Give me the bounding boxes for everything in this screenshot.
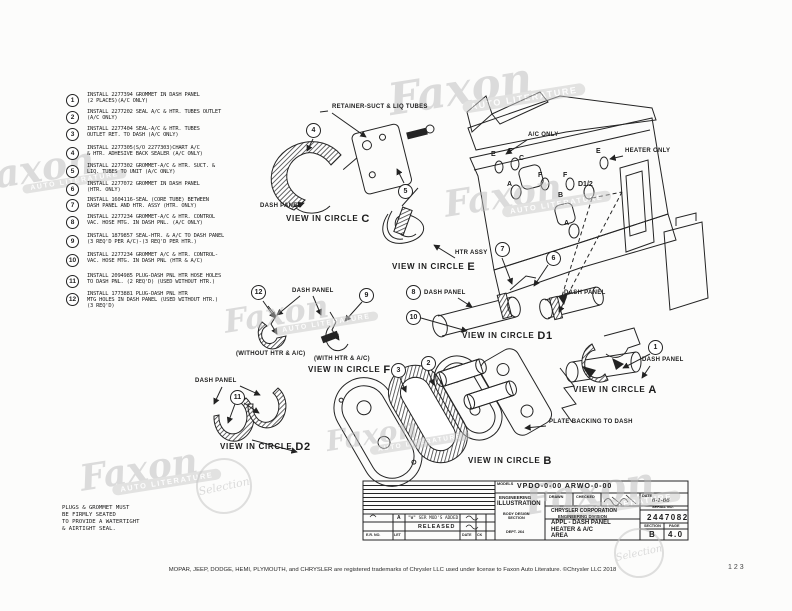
view-letter: D2 [295, 441, 310, 453]
parts-item-number: 8 [66, 216, 79, 229]
dash-panel-label: DASH PANEL [642, 357, 684, 363]
parts-item-number: 7 [66, 199, 79, 212]
view-prefix: VIEW IN CIRCLE [220, 442, 292, 451]
dash-panel-label: DASH PANEL [260, 203, 302, 209]
division-name: ENGINEERING DIVISION [558, 514, 607, 519]
overview-letter: F [538, 172, 542, 179]
callout-2: 2 [421, 356, 436, 371]
view-d2-title: VIEW IN CIRCLE D2 [220, 441, 311, 453]
view-letter: B [543, 455, 552, 467]
let-label: LET [394, 533, 401, 537]
callout-10: 10 [406, 310, 421, 325]
callout-6: 6 [546, 251, 561, 266]
overview-letter: A [507, 181, 512, 188]
overview-letter: F [508, 148, 512, 155]
ac-only-label: A/C ONLY [528, 132, 559, 138]
parts-item-number: 1 [66, 94, 79, 107]
view-prefix: VIEW IN CIRCLE [308, 365, 380, 374]
view-c-title: VIEW IN CIRCLE C [286, 213, 370, 225]
section-label: SECTION [644, 524, 661, 528]
view-prefix: VIEW IN CIRCLE [392, 262, 464, 271]
er-no-label: E.R. NO. [366, 533, 380, 537]
view-letter: F [383, 364, 390, 376]
serial-number: 2447082 [647, 513, 689, 522]
parts-item-text: INSTALL 2277202 SEAL A/C & HTR. TUBES OU… [87, 109, 279, 121]
models-label: MODELS [497, 482, 513, 486]
callout-5: 5 [398, 184, 413, 199]
parts-item-number: 4 [66, 147, 79, 160]
illustration-label: ILLUSTRATION [497, 501, 541, 507]
overview-letter: F [563, 172, 567, 179]
revision-description: "W" SER MOD'S ADDED [408, 516, 458, 521]
dash-panel-label: DASH PANEL [195, 378, 237, 384]
plate-backing-label: PLATE BACKING TO DASH [549, 419, 633, 425]
drawn-label: DRAWN [549, 495, 563, 499]
retainer-label: RETAINER-SUCT & LIQ TUBES [332, 104, 428, 110]
seating-note: PLUGS & GROMMET MUST BE FIRMLY SEATED TO… [62, 505, 139, 533]
overview-letter: A [564, 220, 569, 227]
callout-11: 11 [230, 390, 245, 405]
overview-letter: E [596, 148, 601, 155]
callout-7: 7 [495, 242, 510, 257]
callout-4: 4 [306, 123, 321, 138]
ck-label: CK [477, 533, 482, 537]
dash-panel-label: DASH PANEL [424, 290, 466, 296]
parts-item-text: INSTALL 2277404 SEAL-A/C & HTR. TUBES OU… [87, 126, 279, 138]
view-a-title: VIEW IN CIRCLE A [573, 384, 657, 396]
view-f-title: VIEW IN CIRCLE F [308, 364, 391, 376]
scanned-parts-diagram-page: Faxon AUTO LITERATURE Faxon AUTO LITERAT… [0, 0, 792, 611]
parts-item-text: INSTALL 2277234 GROMMET-A/C & HTR. CONTR… [87, 214, 279, 226]
parts-item-number: 11 [66, 275, 79, 288]
without-htr-label: (WITHOUT HTR & A/C) [236, 351, 305, 357]
parts-item-number: 3 [66, 128, 79, 141]
section-value: B [649, 530, 656, 539]
rev-date-label: DATE [462, 533, 472, 537]
parts-item-text: INSTALL 2277305(S/O 2277303)CHART A/C & … [87, 145, 279, 157]
trademark-footer: MOPAR, JEEP, DODGE, HEMI, PLYMOUTH, and … [120, 567, 665, 573]
callout-9: 9 [359, 288, 374, 303]
parts-item-number: 5 [66, 165, 79, 178]
heater-only-label: HEATER ONLY [625, 148, 670, 154]
dash-panel-label: DASH PANEL [292, 288, 334, 294]
view-d1-title: VIEW IN CIRCLE D1 [462, 330, 553, 342]
parts-item-text: INSTALL 1879857 SEAL-HTR. & A/C TO DASH … [87, 233, 279, 245]
callout-8: 8 [406, 285, 421, 300]
view-letter: C [361, 213, 370, 225]
htr-assy-label: HTR ASSY [455, 250, 488, 256]
released-label: RELEASED [418, 524, 455, 530]
dash-panel-label: DASH PANEL [564, 290, 606, 296]
eng-label: ENGINEERING [499, 495, 531, 500]
parts-item-number: 2 [66, 111, 79, 124]
parts-item-text: INSTALL 2277072 GROMMET IN DASH PANEL (H… [87, 181, 279, 193]
with-htr-label: (WITH HTR & A/C) [314, 356, 370, 362]
page-label: PAGE [669, 524, 679, 528]
page-value: 4.0 [668, 530, 684, 539]
checked-label: CHECKED [576, 495, 595, 499]
models-value: VPDO-0-00 ARWO-0-00 [517, 483, 612, 490]
callout-12: 12 [251, 285, 266, 300]
parts-item-number: 9 [66, 235, 79, 248]
page-number: 123 [728, 564, 746, 571]
view-prefix: VIEW IN CIRCLE [286, 214, 358, 223]
overview-letter: C [519, 155, 524, 162]
view-letter: D1 [537, 330, 552, 342]
date-value: 6-1-66 [652, 498, 670, 504]
view-prefix: VIEW IN CIRCLE [462, 331, 534, 340]
parts-item-text: INSTALL 2277234 GROMMET A/C & HTR. CONTR… [87, 252, 279, 264]
parts-item-text: INSTALL 2277394 GROMMET IN DASH PANEL (2… [87, 92, 279, 104]
view-b-title: VIEW IN CIRCLE B [468, 455, 552, 467]
view-letter: A [648, 384, 657, 396]
callout-3: 3 [391, 363, 406, 378]
view-prefix: VIEW IN CIRCLE [573, 385, 645, 394]
overview-letter: B [558, 192, 563, 199]
view-letter: E [467, 261, 475, 273]
callout-1: 1 [648, 340, 663, 355]
overview-letter: E [491, 151, 496, 158]
serial-label: SERIAL NO. [652, 505, 674, 509]
view-e-title: VIEW IN CIRCLE E [392, 261, 475, 273]
parts-item-text: INSTALL 2094985 PLUG-DASH PNL HTR HOSE H… [87, 273, 279, 285]
parts-item-text: INSTALL 1604116-SEAL (CORE TUBE) BETWEEN… [87, 197, 279, 209]
application-title: APPL - DASH PANEL HEATER & A/C AREA [551, 520, 611, 540]
revision-letter: A [397, 515, 401, 521]
parts-item-text: INSTALL 2277302 GROMMET-A/C & HTR. SUCT.… [87, 163, 279, 175]
parts-item-number: 12 [66, 293, 79, 306]
dept-label: DEPT. 264 [506, 530, 524, 534]
date-label: DATE [642, 494, 652, 498]
parts-item-number: 10 [66, 254, 79, 267]
parts-item-number: 6 [66, 183, 79, 196]
view-prefix: VIEW IN CIRCLE [468, 456, 540, 465]
body-design-label: BODY DESIGN SECTION [503, 512, 530, 520]
overview-letter: D1/2 [578, 181, 593, 188]
